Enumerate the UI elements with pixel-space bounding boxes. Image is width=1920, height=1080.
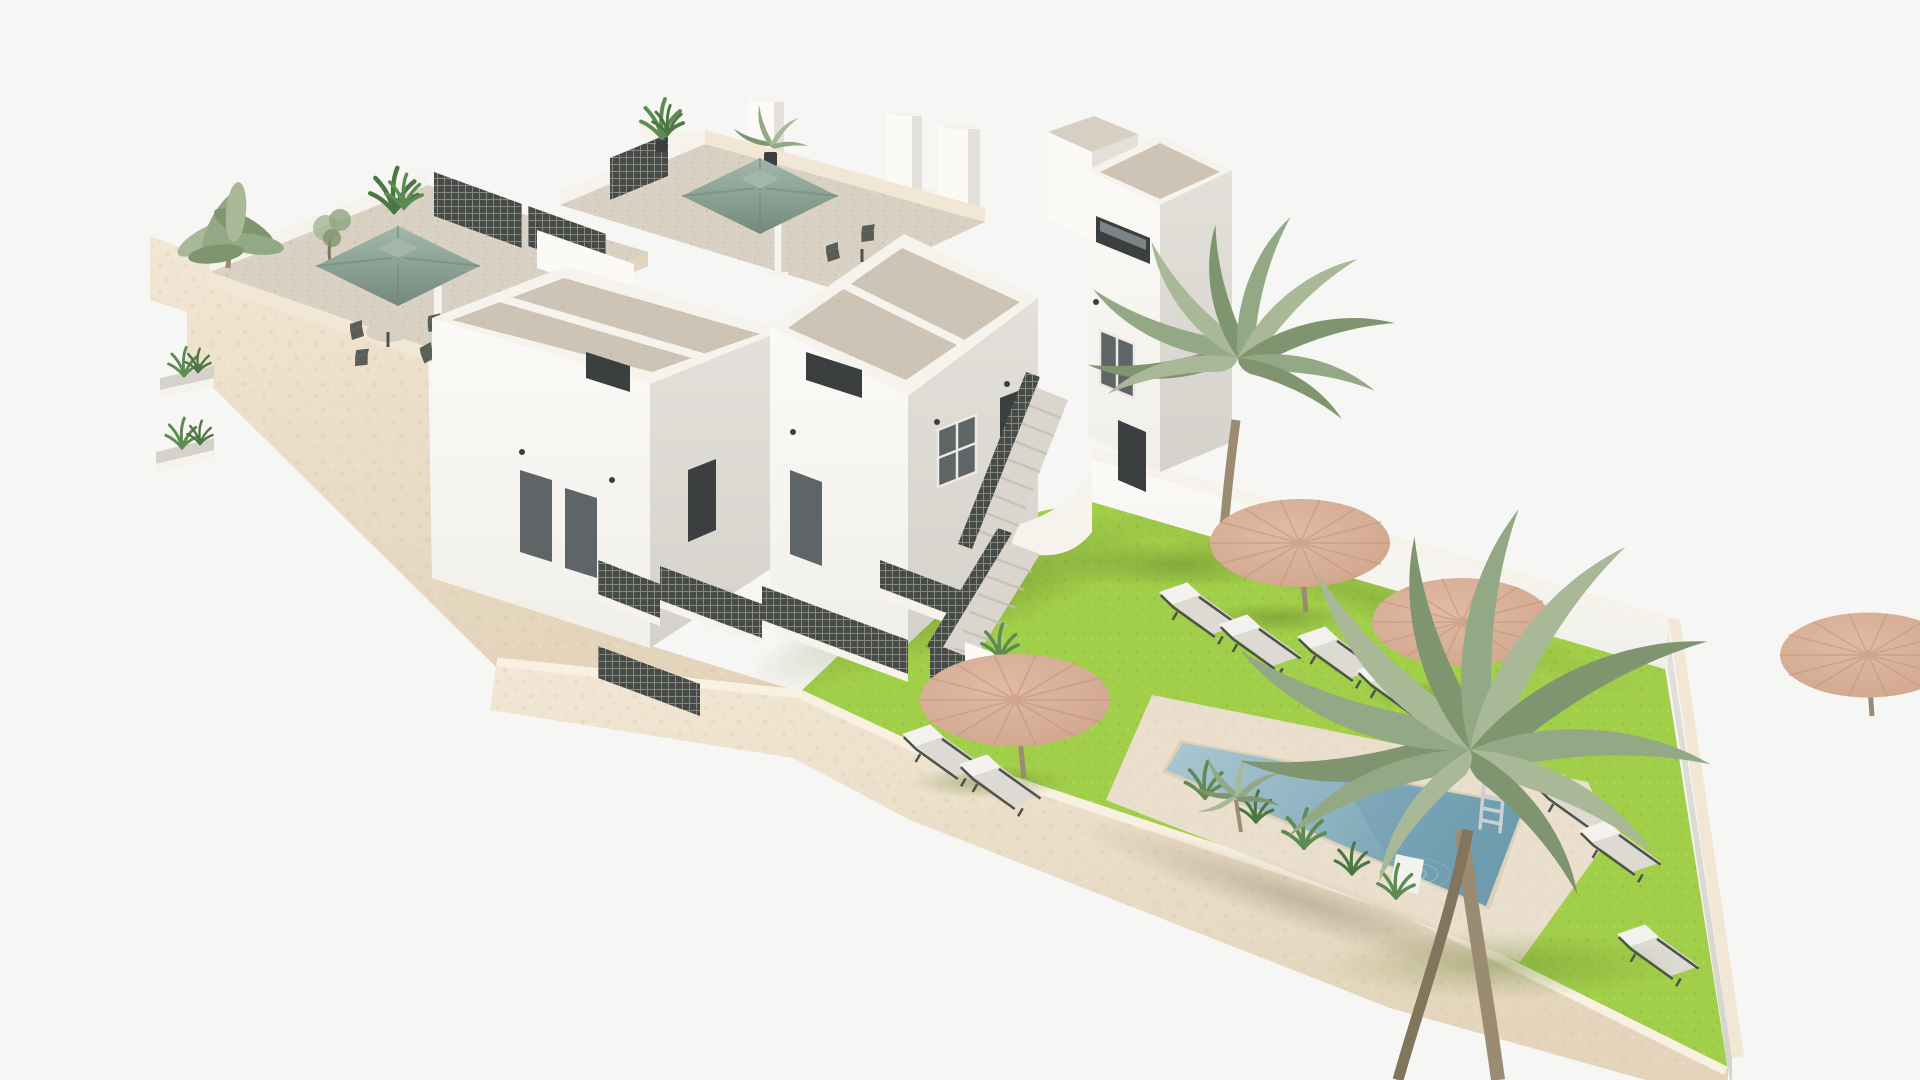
wall-lamp — [1004, 381, 1010, 387]
door — [1118, 420, 1146, 492]
architectural-render — [0, 0, 1920, 1080]
door — [520, 470, 552, 562]
door — [790, 470, 822, 566]
render-canvas — [0, 0, 1920, 1080]
wall-lamp — [934, 419, 940, 425]
palm-shadow — [1320, 931, 1680, 999]
wall-lamp — [790, 429, 796, 435]
door — [688, 459, 716, 542]
wall-lamp — [609, 477, 615, 483]
wall-lamp — [519, 449, 525, 455]
wall-lamp — [1093, 299, 1099, 305]
corner-tower — [1088, 135, 1232, 492]
door — [565, 488, 597, 578]
